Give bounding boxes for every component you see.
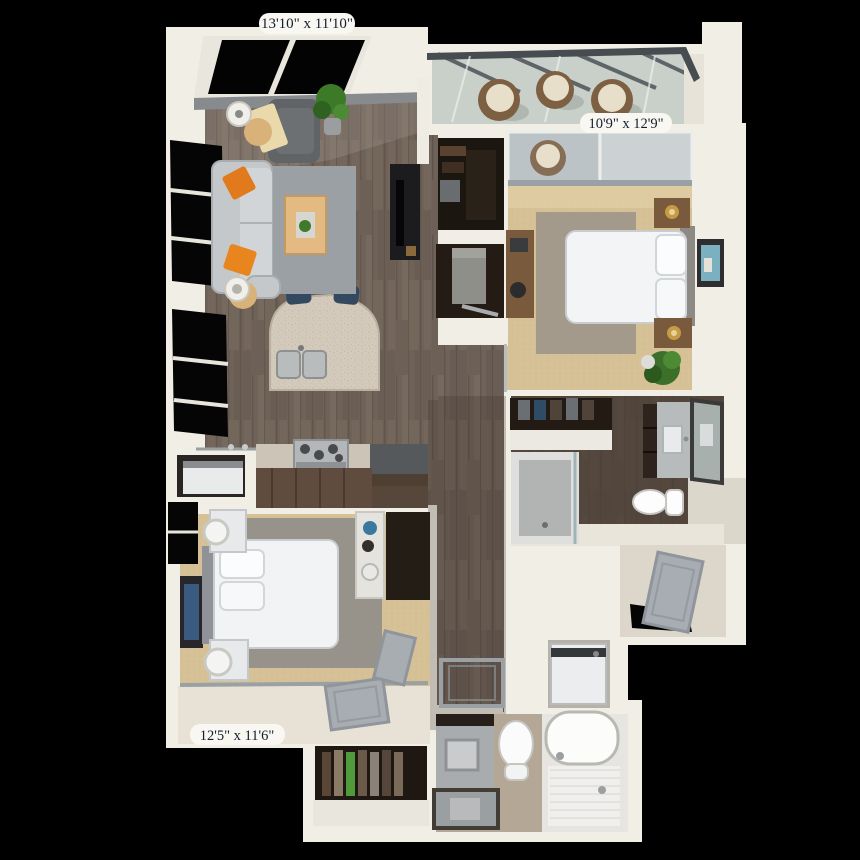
svg-text:13'10" x 11'10": 13'10" x 11'10" bbox=[261, 16, 353, 32]
svg-text:12'5" x 11'6": 12'5" x 11'6" bbox=[200, 728, 275, 744]
svg-text:10'9" x 12'9": 10'9" x 12'9" bbox=[588, 116, 663, 132]
